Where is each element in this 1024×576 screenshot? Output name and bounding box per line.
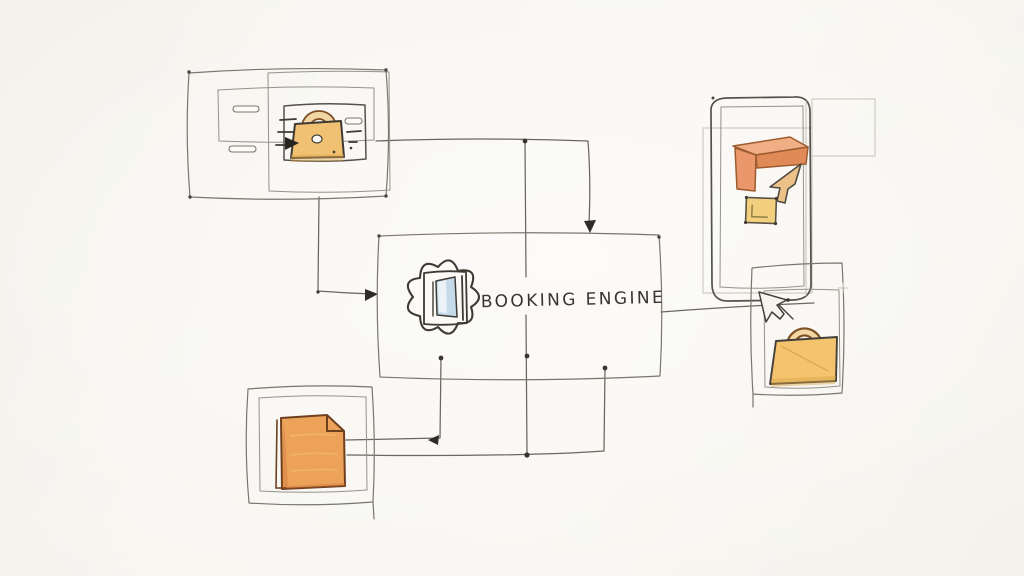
speed-pill [345,118,362,124]
padlock-icon [291,111,344,162]
mobile-app-node [703,97,875,302]
connector-listing-to-engine-left [318,197,372,294]
corner-dot [657,235,660,238]
speed-pill [233,106,259,112]
junction-dot [603,366,608,371]
phone-screen [720,106,804,288]
listing-card-node [187,68,390,199]
corner-dot [377,234,380,237]
corner-dot [384,68,387,71]
gear-window-highlight [438,280,447,313]
junction-dot [316,290,319,293]
connector-engine-to-document-b [347,368,605,456]
document-node [246,386,374,519]
corner-dot [188,195,191,198]
connector-listing-to-engine-top [376,139,590,224]
junction-dot [439,356,444,361]
connector-engine-to-document-a [346,358,441,440]
junction-dot [524,452,529,457]
gear-icon [408,260,479,333]
app-square [746,197,777,223]
side-construction-box [812,99,875,156]
arrowhead-down-icon [584,220,596,233]
padlock-rivet [333,151,336,154]
listing-outer-box [187,69,388,200]
booking-engine-node: BOOKING ENGINE [377,233,665,380]
corner-dot [187,70,190,73]
app-square-icon [744,196,778,225]
booking-engine-sketch: BOOKING ENGINE [0,0,1024,576]
padlock-shadow [291,154,344,162]
junction-dot [525,354,530,359]
padlock-icon [770,328,837,387]
speed-dot [350,147,353,150]
connector-engine-to-checkout [661,303,814,312]
connector-vertical-spine-upper [525,141,526,277]
junction-dot [523,139,528,144]
padlock-keyhole [312,135,322,143]
note-body [281,415,345,489]
connector-vertical-spine-lower [526,315,527,455]
cursor-icon [770,164,801,203]
speed-pill [229,146,256,152]
bracket-left-bar [735,148,756,191]
sketch-canvas: BOOKING ENGINE [0,0,1024,576]
secure-checkout-node [751,263,848,407]
arrowhead-right-icon [365,289,378,301]
cursor-pointer [759,292,787,322]
corner-bracket-icon [733,137,808,191]
corner-dot [712,97,715,100]
corner-dot [384,194,387,197]
note-icon [276,415,345,489]
engine-label: BOOKING ENGINE [481,288,666,312]
arrowhead-left-icon [428,435,439,445]
cursor-dot [786,298,790,302]
